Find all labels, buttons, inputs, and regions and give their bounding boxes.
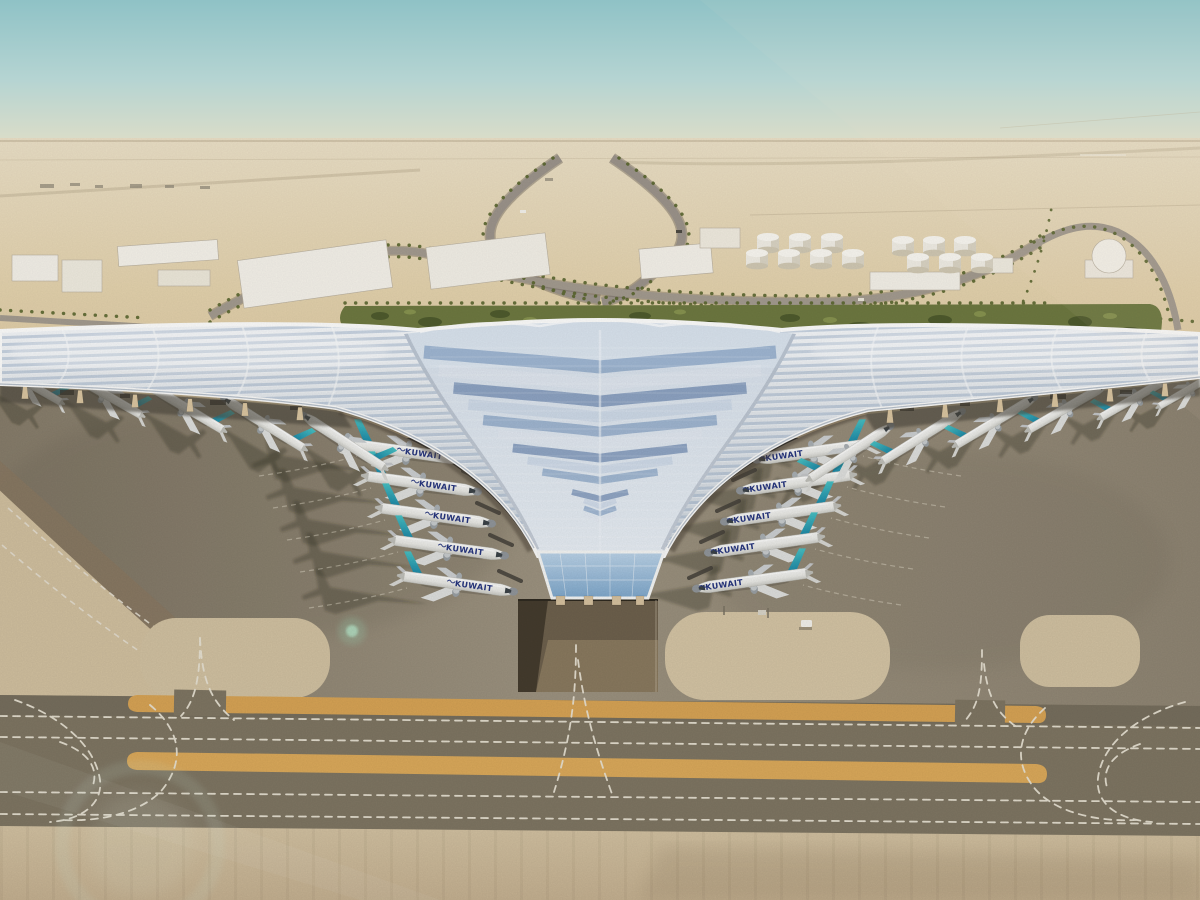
ground-grain: [0, 368, 1200, 900]
scene-canvas: KUWAITKUWAITKUWAITKUWAITKUWAITKUWAITKUWA…: [0, 0, 1200, 900]
aerial-rendering: KUWAITKUWAITKUWAITKUWAITKUWAITKUWAITKUWA…: [0, 0, 1200, 900]
